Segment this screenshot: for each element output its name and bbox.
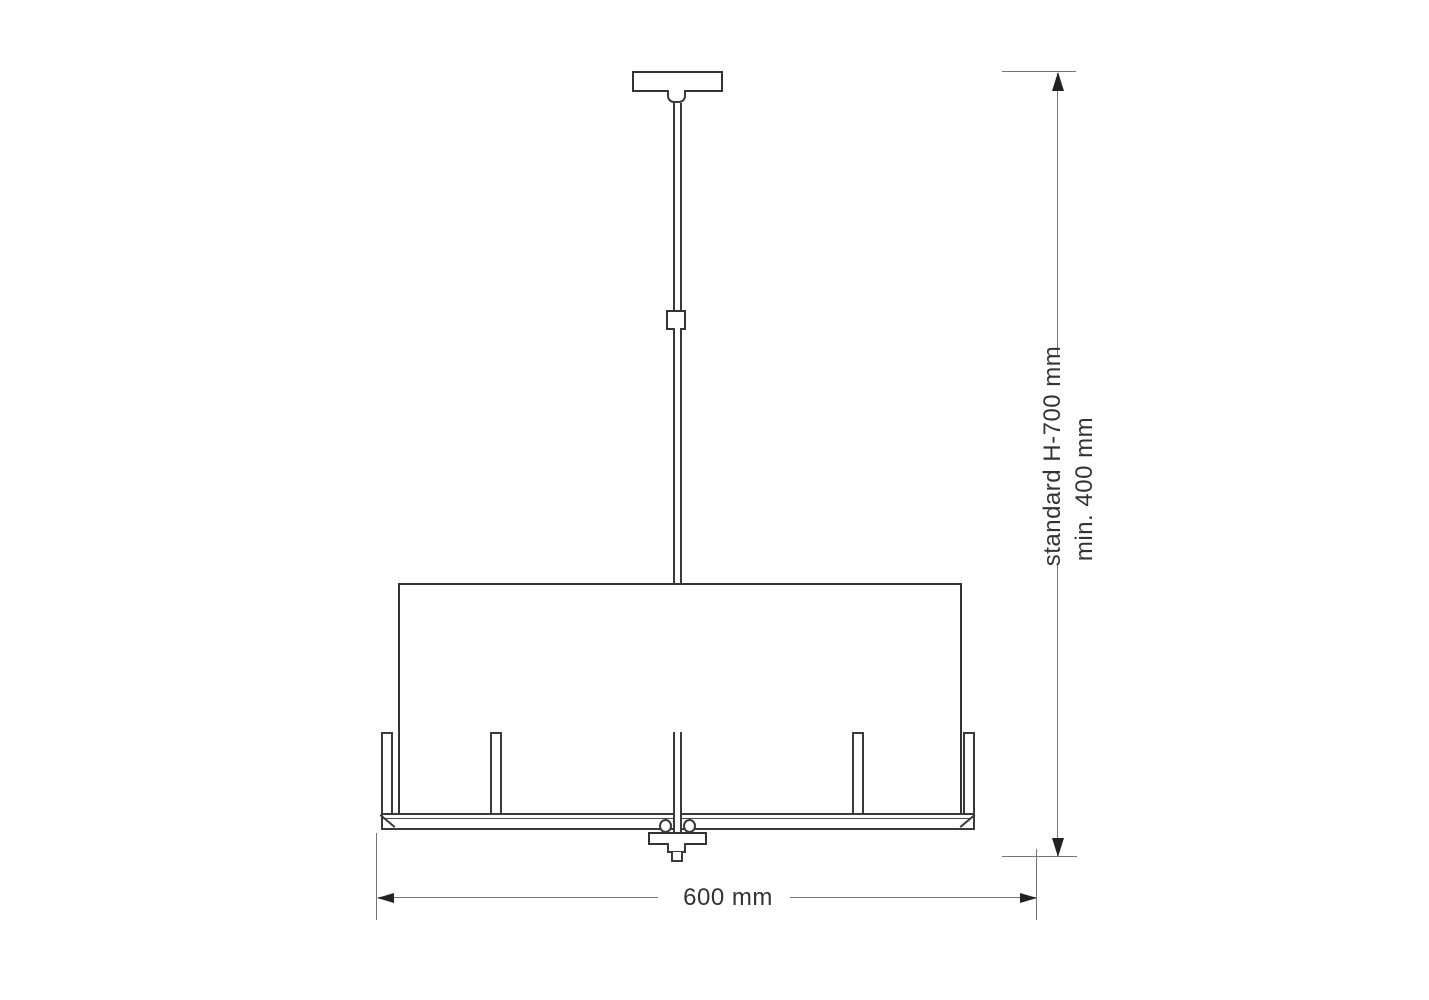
hanging-rod-lower <box>673 328 682 585</box>
arrowhead-right-icon <box>1020 893 1037 903</box>
witness-line-bottom-right <box>1036 849 1037 920</box>
ceiling-canopy <box>632 71 723 92</box>
arrowhead-up-icon <box>1052 72 1064 91</box>
width-dimension-line-left <box>378 897 658 898</box>
witness-line-bottom-left <box>376 833 377 920</box>
width-dimension-label: 600 mm <box>658 884 798 912</box>
arrowhead-down-icon <box>1052 838 1064 857</box>
rod-coupler <box>666 310 686 330</box>
candle-arm-right-outer <box>963 732 975 815</box>
canopy-neck <box>667 90 686 103</box>
hanging-rod-upper <box>673 103 682 312</box>
candle-arm-right <box>852 732 864 815</box>
width-dimension-line-right <box>790 897 1037 898</box>
center-stem <box>673 732 682 834</box>
arrowhead-left-icon <box>377 893 394 903</box>
height-dimension-line-top <box>1057 73 1058 355</box>
height-dimension-line-bottom <box>1057 565 1058 857</box>
candle-arm-left <box>490 732 502 815</box>
lamp-dimension-drawing: 600 mm standard H-700 mm min. 400 mm <box>0 0 1429 1000</box>
height-standard-label: standard H-700 mm <box>1039 336 1067 576</box>
rod-collar-left <box>659 819 672 833</box>
height-min-label: min. 400 mm <box>1071 369 1099 609</box>
witness-line-height-top <box>1002 71 1076 72</box>
finial-tip <box>671 852 683 862</box>
rod-collar-right <box>683 819 696 833</box>
witness-line-height-bottom <box>1002 856 1077 857</box>
candle-arm-left-outer <box>381 732 393 815</box>
